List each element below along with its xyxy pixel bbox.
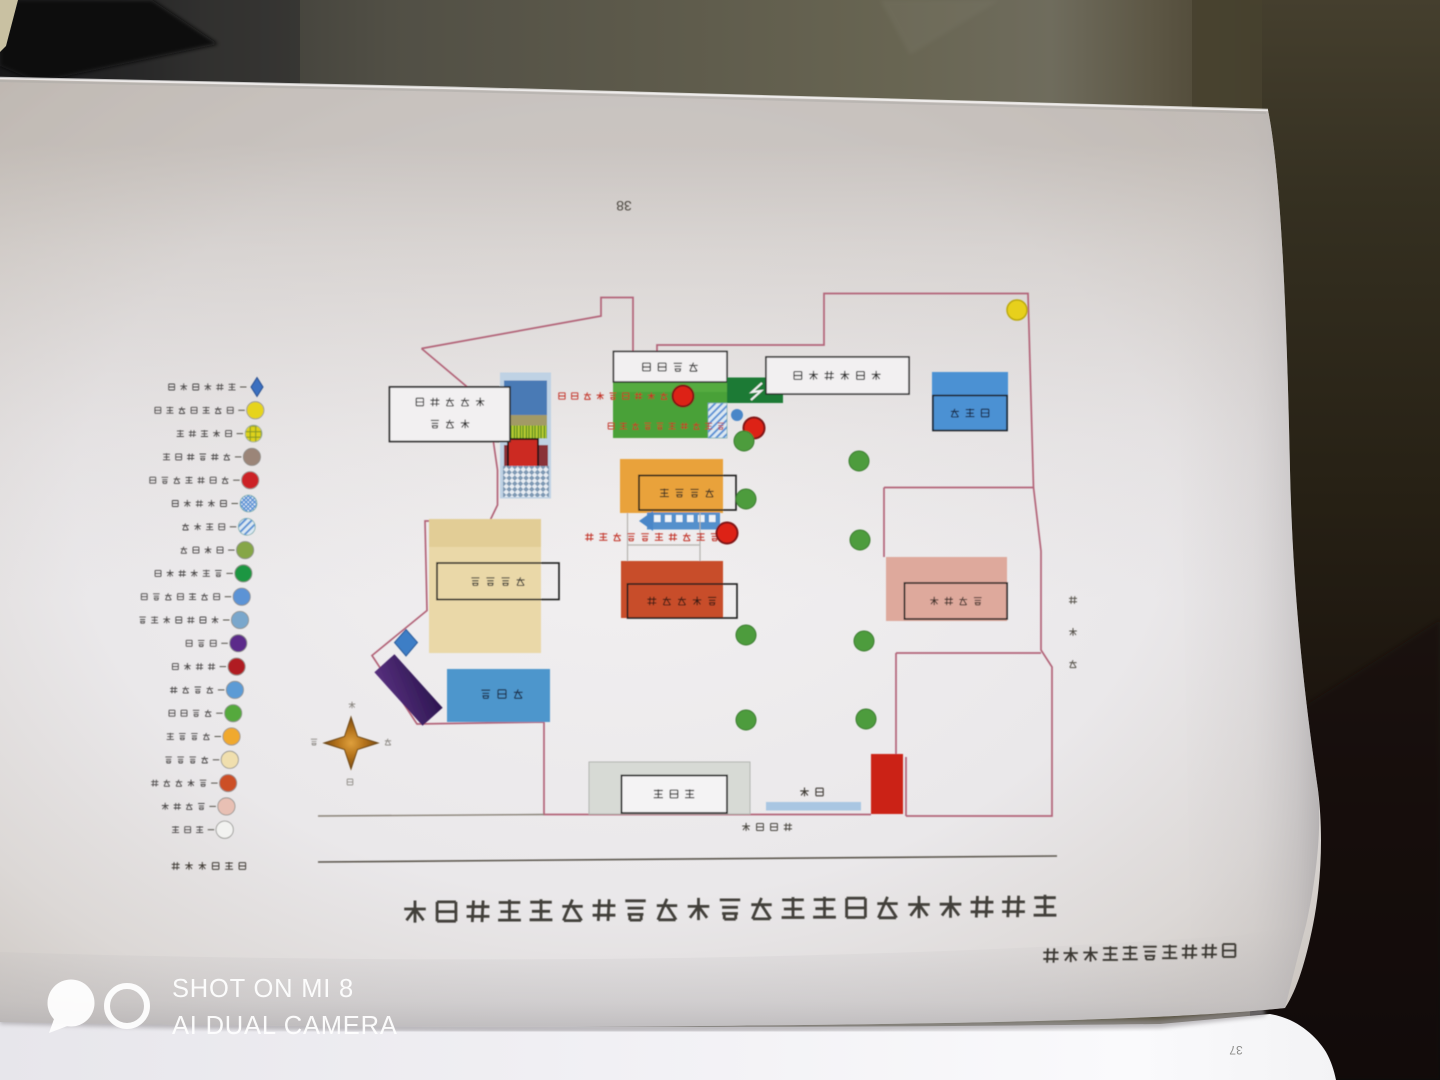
svg-text:37: 37 bbox=[1229, 1043, 1243, 1057]
svg-text:38: 38 bbox=[616, 198, 632, 214]
svg-text:SHOT ON MI 8: SHOT ON MI 8 bbox=[172, 975, 354, 1003]
svg-text:AI DUAL CAMERA: AI DUAL CAMERA bbox=[172, 1012, 398, 1040]
